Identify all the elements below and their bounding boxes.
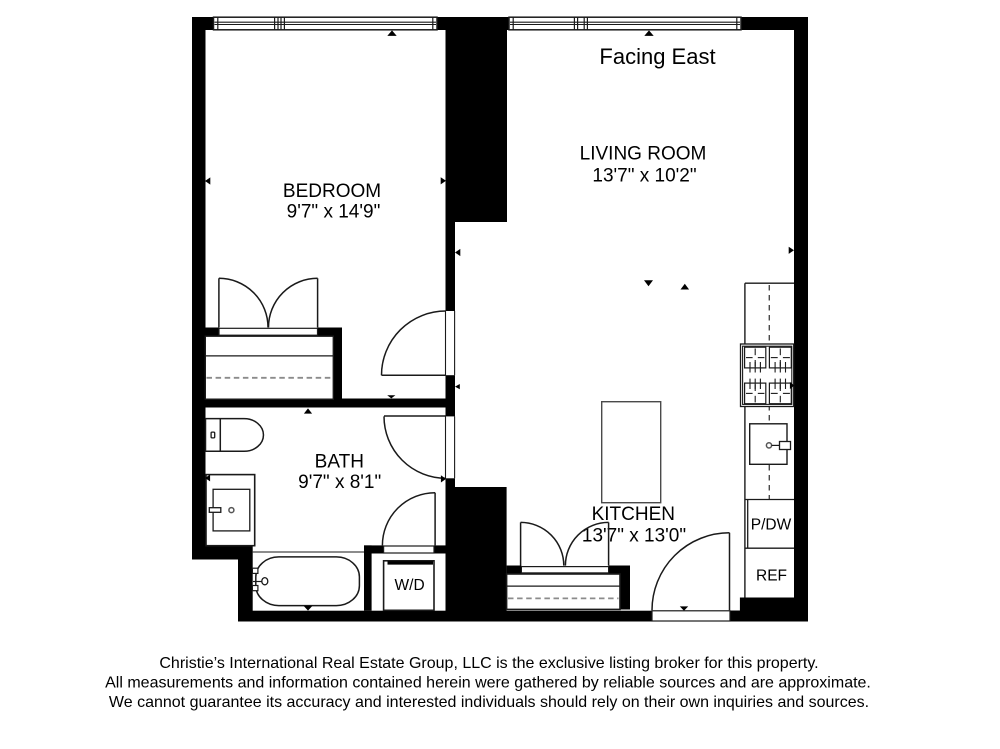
svg-text:LIVING ROOM: LIVING ROOM (580, 144, 707, 165)
svg-text:We cannot guarantee its accura: We cannot guarantee its accuracy and int… (109, 694, 869, 711)
svg-text:13'7" x 10'2": 13'7" x 10'2" (592, 166, 696, 187)
svg-text:13'7" x 13'0": 13'7" x 13'0" (582, 526, 686, 547)
svg-text:REF: REF (756, 567, 787, 584)
svg-text:Facing East: Facing East (599, 44, 715, 69)
svg-text:BEDROOM: BEDROOM (283, 181, 381, 202)
svg-text:W/D: W/D (395, 577, 425, 594)
svg-text:All measurements and informati: All measurements and information contain… (105, 674, 871, 691)
svg-text:Christie’s International Real: Christie’s International Real Estate Gro… (159, 655, 818, 672)
svg-text:KITCHEN: KITCHEN (592, 504, 675, 525)
svg-text:BATH: BATH (315, 452, 364, 473)
svg-text:9'7" x 8'1": 9'7" x 8'1" (298, 472, 381, 493)
svg-text:P/DW: P/DW (751, 517, 792, 534)
svg-text:9'7" x 14'9": 9'7" x 14'9" (287, 202, 381, 223)
